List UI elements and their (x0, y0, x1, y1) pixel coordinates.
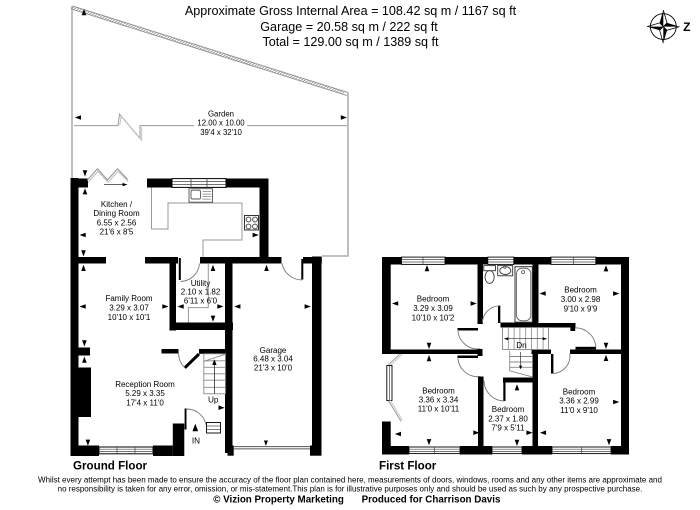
svg-text:21'3 x 10'0: 21'3 x 10'0 (254, 363, 293, 372)
svg-text:5.29 x 3.35: 5.29 x 3.35 (125, 389, 165, 398)
svg-text:12.00 x 10.00: 12.00 x 10.00 (197, 118, 245, 127)
svg-text:9'10 x 9'9: 9'10 x 9'9 (564, 305, 598, 314)
svg-text:Bedroom: Bedroom (564, 286, 597, 295)
svg-text:21'6 x 8'5: 21'6 x 8'5 (100, 227, 134, 236)
svg-text:Ground Floor: Ground Floor (73, 459, 148, 472)
svg-text:11'0 x 10'11: 11'0 x 10'11 (418, 405, 460, 414)
svg-text:2.10 x 1.82: 2.10 x 1.82 (181, 287, 221, 296)
svg-text:17'4 x 11'0: 17'4 x 11'0 (126, 398, 164, 407)
svg-text:Produced for Charrison Davis: Produced for Charrison Davis (362, 494, 501, 505)
svg-text:3.29 x 3.07: 3.29 x 3.07 (109, 303, 149, 312)
svg-text:3.36 x 3.34: 3.36 x 3.34 (419, 396, 459, 405)
svg-text:6.48 x 3.04: 6.48 x 3.04 (253, 354, 293, 363)
svg-text:Up: Up (208, 396, 219, 405)
svg-text:Garden: Garden (208, 110, 234, 119)
svg-text:Whilst every attempt has been: Whilst every attempt has been made to en… (38, 475, 662, 484)
svg-text:Garage = 20.58 sq m / 222 sq f: Garage = 20.58 sq m / 222 sq ft (260, 20, 438, 34)
svg-text:39'4 x 32'10: 39'4 x 32'10 (200, 128, 242, 137)
svg-text:Family Room: Family Room (105, 294, 152, 303)
svg-text:10'10 x 10'2: 10'10 x 10'2 (412, 313, 455, 322)
svg-text:Kitchen /: Kitchen / (101, 200, 133, 209)
svg-text:First Floor: First Floor (379, 459, 437, 472)
svg-text:10'10 x 10'1: 10'10 x 10'1 (108, 313, 151, 322)
svg-text:Dn: Dn (516, 341, 527, 350)
svg-text:Z: Z (683, 20, 690, 34)
svg-text:Dining Room: Dining Room (93, 209, 140, 218)
svg-text:Bedroom: Bedroom (417, 295, 450, 304)
svg-text:6.55 x 2.56: 6.55 x 2.56 (97, 218, 137, 227)
svg-text:7'9 x 5'11: 7'9 x 5'11 (491, 423, 525, 432)
svg-text:Bedroom: Bedroom (563, 388, 596, 397)
svg-text:11'0 x 9'10: 11'0 x 9'10 (560, 406, 598, 415)
svg-text:Bedroom: Bedroom (492, 405, 525, 414)
svg-text:Approximate Gross Internal Are: Approximate Gross Internal Area = 108.42… (185, 4, 517, 18)
svg-text:Reception Room: Reception Room (115, 380, 175, 389)
svg-text:6'11 x 6'0: 6'11 x 6'0 (184, 296, 218, 305)
svg-text:Total = 129.00 sq m / 1389 sq: Total = 129.00 sq m / 1389 sq ft (262, 35, 439, 49)
svg-text:3.00 x 2.98: 3.00 x 2.98 (561, 295, 601, 304)
svg-text:© Vizion Property Marketing: © Vizion Property Marketing (213, 494, 344, 505)
svg-text:3.36 x 2.99: 3.36 x 2.99 (559, 397, 599, 406)
svg-text:3.29 x 3.09: 3.29 x 3.09 (413, 304, 453, 313)
svg-text:2.37 x 1.80: 2.37 x 1.80 (488, 414, 528, 423)
svg-text:IN: IN (192, 436, 200, 445)
svg-text:Bedroom: Bedroom (422, 387, 455, 396)
svg-text:no responsibility is taken for: no responsibility is taken for any error… (58, 485, 643, 494)
